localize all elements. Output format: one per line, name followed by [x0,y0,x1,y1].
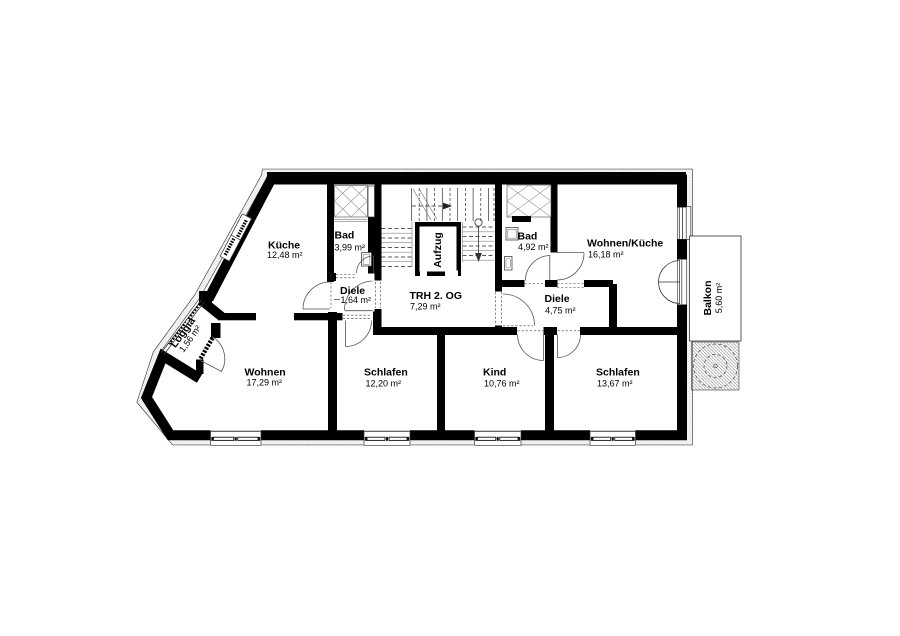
svg-text:Diele: Diele [545,293,570,305]
svg-text:Aufzug: Aufzug [432,232,444,268]
svg-text:Schlafen: Schlafen [364,367,408,379]
svg-text:1,64 m²: 1,64 m² [341,295,372,305]
svg-text:5,60 m²: 5,60 m² [714,283,724,314]
svg-text:4,75 m²: 4,75 m² [545,306,576,316]
svg-text:13,67 m²: 13,67 m² [597,379,633,389]
svg-text:Bad: Bad [518,231,538,243]
svg-text:7,29 m²: 7,29 m² [410,302,441,312]
svg-text:10,76 m²: 10,76 m² [484,379,520,389]
svg-text:Wohnen/Küche: Wohnen/Küche [587,238,663,250]
svg-text:Kind: Kind [483,367,506,379]
svg-text:17,29 m²: 17,29 m² [247,378,283,388]
svg-text:TRH 2. OG: TRH 2. OG [410,290,463,302]
svg-text:16,18 m²: 16,18 m² [588,250,624,260]
svg-text:3,99 m²: 3,99 m² [335,243,366,253]
svg-text:Bad: Bad [335,230,355,242]
svg-text:4,92 m²: 4,92 m² [518,242,549,252]
svg-text:Balkon: Balkon [702,280,714,315]
svg-text:12,48 m²: 12,48 m² [267,250,303,260]
svg-text:Schlafen: Schlafen [596,367,640,379]
svg-text:12,20 m²: 12,20 m² [366,379,402,389]
